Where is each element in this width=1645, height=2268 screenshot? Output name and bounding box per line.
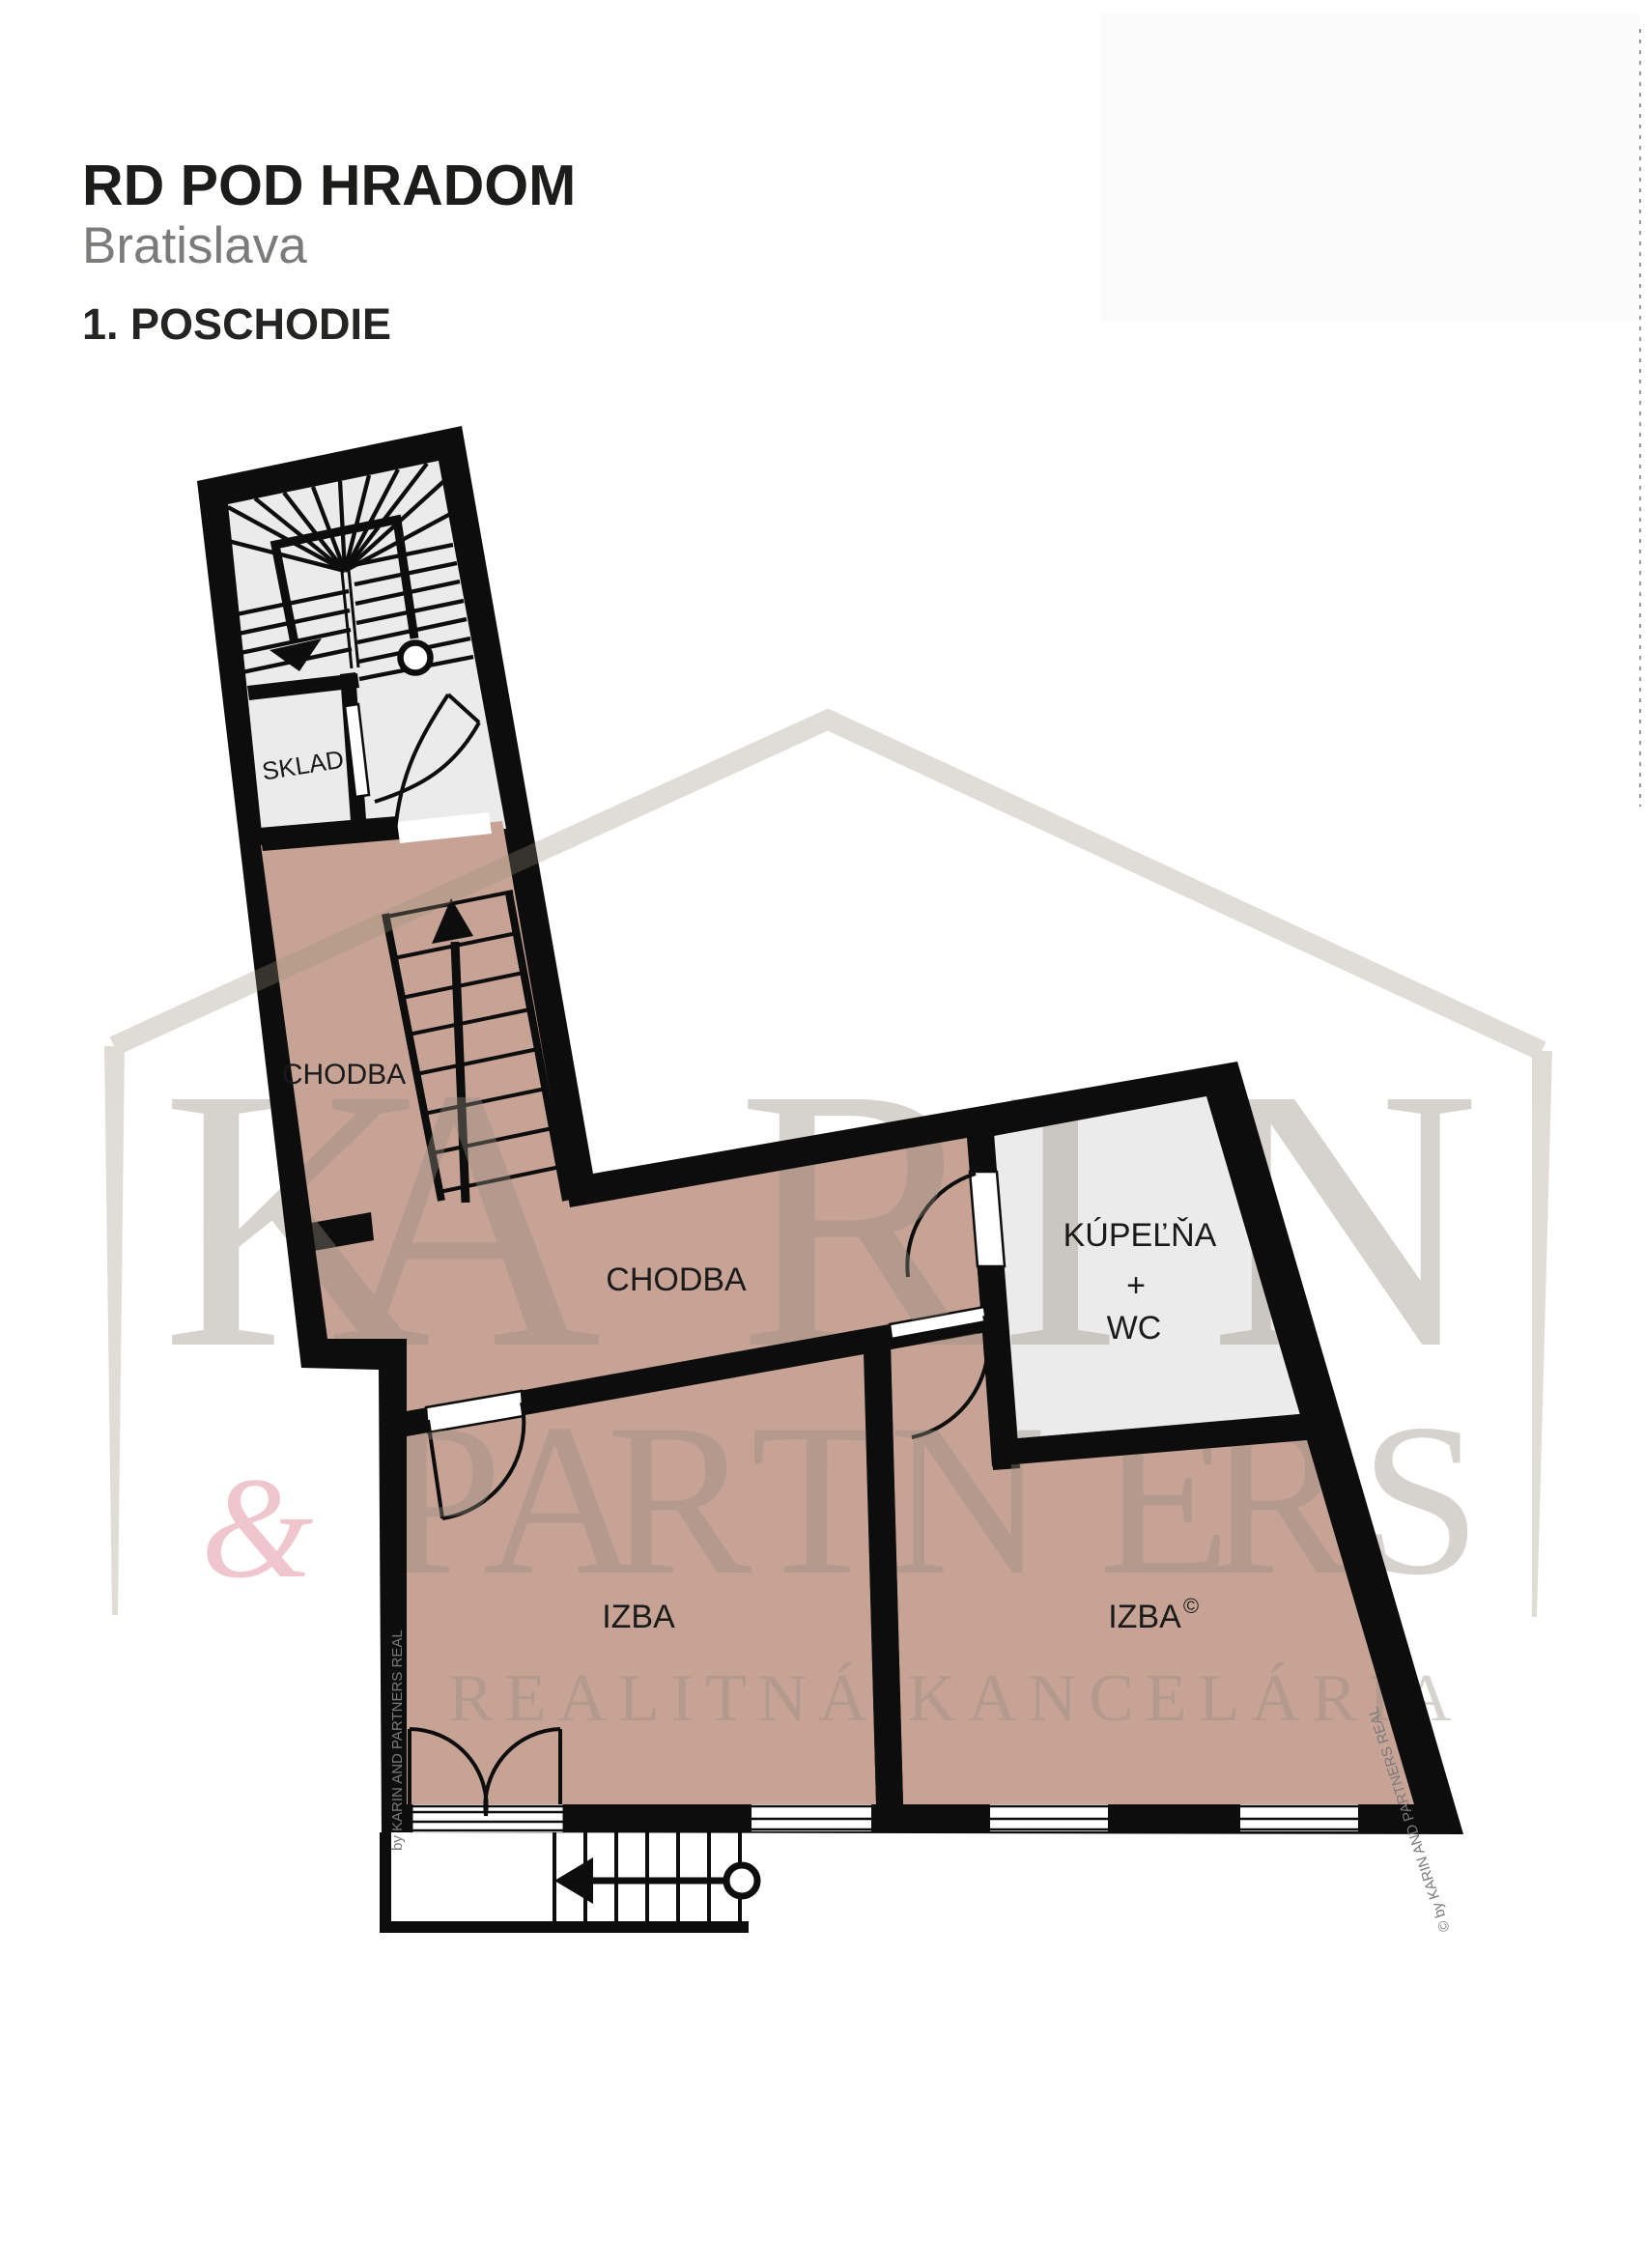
svg-text:R: R [607,1378,752,1620]
svg-text:RD POD HRADOM: RD POD HRADOM [82,154,576,217]
svg-text:CHODBA: CHODBA [282,1059,406,1091]
svg-text:IZBA: IZBA [602,1599,675,1635]
svg-text:&: & [201,1448,314,1608]
svg-text:WC: WC [1107,1310,1162,1347]
svg-text:KÚPEĽŇA: KÚPEĽŇA [1064,1217,1217,1254]
svg-text:©: © [1183,1594,1199,1618]
svg-text:N: N [889,1378,1046,1620]
svg-text:by KARIN AND PARTNERS REAL: by KARIN AND PARTNERS REAL [389,1630,406,1851]
svg-text:REALITNÁ KANCELÁRIA: REALITNÁ KANCELÁRIA [448,1661,1462,1736]
svg-text:Bratislava: Bratislava [82,217,307,274]
svg-text:T: T [751,1378,883,1620]
svg-text:+: + [1126,1267,1146,1304]
svg-text:1. POSCHODIE: 1. POSCHODIE [82,299,391,349]
svg-text:CHODBA: CHODBA [606,1262,747,1298]
svg-text:IZBA: IZBA [1108,1599,1181,1635]
